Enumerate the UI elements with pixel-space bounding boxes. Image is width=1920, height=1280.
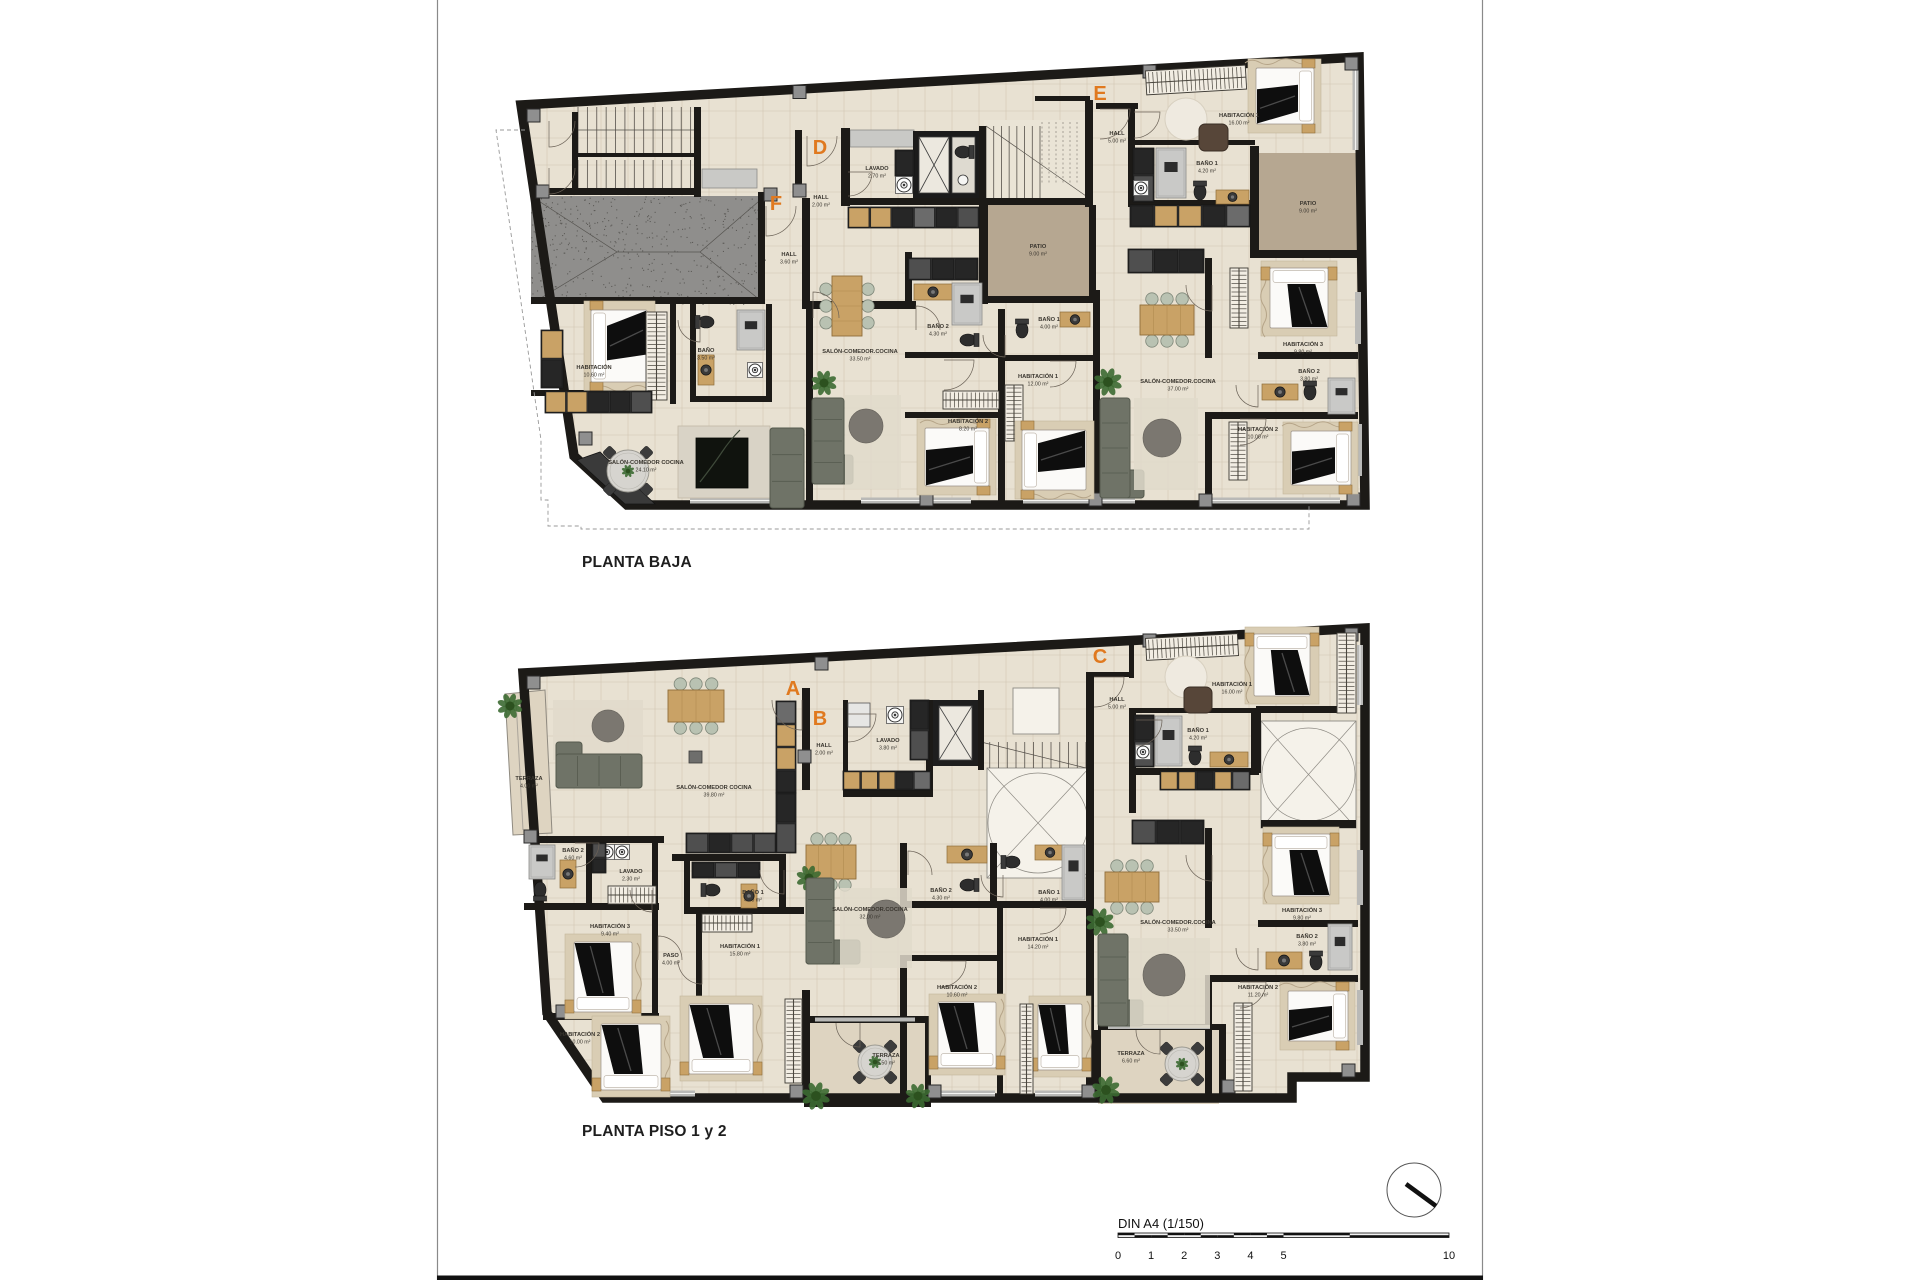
svg-text:4.00 m²: 4.00 m²: [662, 961, 680, 967]
svg-text:9.80 m²: 9.80 m²: [1293, 916, 1311, 922]
svg-text:10.60 m²: 10.60 m²: [947, 993, 968, 999]
svg-text:HABITACIÓN 2: HABITACIÓN 2: [1238, 983, 1278, 991]
svg-text:LAVADO: LAVADO: [619, 869, 643, 875]
svg-text:SALÓN-COMEDOR.COCINA: SALÓN-COMEDOR.COCINA: [1140, 377, 1216, 385]
svg-text:HABITACIÓN 2: HABITACIÓN 2: [1238, 425, 1278, 433]
svg-text:BAÑO 1: BAÑO 1: [1038, 316, 1060, 323]
svg-text:10.00 m²: 10.00 m²: [1248, 435, 1269, 441]
svg-text:HALL: HALL: [781, 252, 797, 258]
svg-text:3: 3: [1214, 1250, 1220, 1262]
svg-text:4.00 m²: 4.00 m²: [1040, 898, 1058, 904]
svg-text:5.00 m²: 5.00 m²: [1108, 139, 1126, 145]
svg-text:12.00 m²: 12.00 m²: [1028, 382, 1049, 388]
svg-text:SALÓN-COMEDOR.COCINA: SALÓN-COMEDOR.COCINA: [832, 905, 908, 913]
svg-text:BAÑO 1: BAÑO 1: [1038, 889, 1060, 896]
svg-text:14.20 m²: 14.20 m²: [1028, 945, 1049, 951]
svg-text:5: 5: [1280, 1250, 1286, 1262]
svg-text:9.40 m²: 9.40 m²: [601, 932, 619, 938]
svg-text:F: F: [770, 193, 782, 215]
svg-text:HALL: HALL: [813, 195, 829, 201]
svg-text:4: 4: [1247, 1250, 1253, 1262]
svg-text:6.60 m²: 6.60 m²: [1122, 1059, 1140, 1065]
svg-text:39.80 m²: 39.80 m²: [704, 793, 725, 799]
svg-text:9.80 m²: 9.80 m²: [1294, 350, 1312, 356]
svg-text:TERRAZA: TERRAZA: [515, 776, 542, 782]
svg-text:TERRAZA: TERRAZA: [872, 1053, 899, 1059]
svg-text:10.00 m²: 10.00 m²: [570, 1040, 591, 1046]
svg-text:3.80 m²: 3.80 m²: [1298, 942, 1316, 948]
svg-text:2: 2: [1181, 1250, 1187, 1262]
svg-text:HABITACIÓN 3: HABITACIÓN 3: [590, 922, 630, 930]
svg-text:2.00 m²: 2.00 m²: [815, 751, 833, 757]
svg-text:SALÓN-COMEDOR.COCINA: SALÓN-COMEDOR.COCINA: [1140, 918, 1216, 926]
svg-text:4.30 m²: 4.30 m²: [929, 332, 947, 338]
svg-text:33.50 m²: 33.50 m²: [1168, 928, 1189, 934]
svg-text:BAÑO 1: BAÑO 1: [1196, 160, 1218, 167]
svg-text:PATIO: PATIO: [1300, 201, 1317, 207]
svg-text:3.60 m²: 3.60 m²: [780, 260, 798, 266]
svg-text:BAÑO 2: BAÑO 2: [927, 323, 949, 330]
svg-text:A: A: [786, 678, 800, 700]
svg-text:2.30 m²: 2.30 m²: [622, 877, 640, 883]
svg-text:B: B: [813, 708, 827, 730]
svg-text:PLANTA PISO 1 y 2: PLANTA PISO 1 y 2: [582, 1123, 727, 1140]
svg-text:15.80 m²: 15.80 m²: [730, 952, 751, 958]
svg-text:37.00 m²: 37.00 m²: [1168, 387, 1189, 393]
svg-text:HALL: HALL: [816, 743, 832, 749]
svg-text:HABITACIÓN 2: HABITACIÓN 2: [937, 983, 977, 991]
svg-text:E: E: [1093, 83, 1106, 105]
svg-text:HABITACIÓN: HABITACIÓN: [576, 363, 611, 371]
svg-text:HABITACIÓN 2: HABITACIÓN 2: [948, 417, 988, 425]
svg-text:PATIO: PATIO: [1030, 244, 1047, 250]
svg-text:16.00 m²: 16.00 m²: [1229, 121, 1250, 127]
svg-text:33.50 m²: 33.50 m²: [850, 357, 871, 363]
svg-text:2.70 m²: 2.70 m²: [868, 174, 886, 180]
svg-text:4.20 m²: 4.20 m²: [1198, 169, 1216, 175]
svg-text:4.30 m²: 4.30 m²: [932, 896, 950, 902]
svg-text:10: 10: [1443, 1250, 1455, 1262]
svg-text:HABITACIÓN 3: HABITACIÓN 3: [1282, 906, 1322, 914]
svg-text:BAÑO 1: BAÑO 1: [1187, 727, 1209, 734]
svg-text:SALÓN-COMEDOR.COCINA: SALÓN-COMEDOR.COCINA: [822, 347, 898, 355]
svg-text:SALÓN-COMEDOR COCINA: SALÓN-COMEDOR COCINA: [676, 783, 752, 791]
svg-text:HALL: HALL: [1109, 697, 1125, 703]
svg-text:D: D: [813, 137, 827, 159]
svg-text:HABITACIÓN 1: HABITACIÓN 1: [1219, 111, 1259, 119]
svg-text:5.00 m²: 5.00 m²: [1108, 705, 1126, 711]
svg-text:BAÑO 1: BAÑO 1: [742, 889, 764, 896]
svg-text:PASO: PASO: [663, 953, 679, 959]
svg-text:10.60 m²: 10.60 m²: [584, 373, 605, 379]
svg-text:2.00 m²: 2.00 m²: [812, 203, 830, 209]
svg-text:1: 1: [1148, 1250, 1154, 1262]
svg-text:4.20 m²: 4.20 m²: [1189, 736, 1207, 742]
svg-text:HABITACIÓN 1: HABITACIÓN 1: [1018, 372, 1058, 380]
svg-text:4.60 m²: 4.60 m²: [564, 856, 582, 862]
svg-text:C: C: [1093, 646, 1107, 668]
svg-text:4.00 m²: 4.00 m²: [520, 784, 538, 790]
svg-text:BAÑO 2: BAÑO 2: [930, 887, 952, 894]
svg-text:BAÑO: BAÑO: [698, 347, 715, 354]
svg-text:4.50 m²: 4.50 m²: [744, 898, 762, 904]
svg-text:9.00 m²: 9.00 m²: [1299, 209, 1317, 215]
svg-text:LAVADO: LAVADO: [865, 166, 889, 172]
svg-text:BAÑO 2: BAÑO 2: [1296, 933, 1318, 940]
svg-text:3.50 m²: 3.50 m²: [697, 356, 715, 362]
svg-text:SALÓN-COMEDOR COCINA: SALÓN-COMEDOR COCINA: [608, 458, 684, 466]
svg-text:LAVADO: LAVADO: [876, 738, 900, 744]
svg-text:16.00 m²: 16.00 m²: [1222, 690, 1243, 696]
svg-text:DIN A4 (1/150): DIN A4 (1/150): [1118, 1216, 1204, 1231]
svg-text:11.20 m²: 11.20 m²: [1248, 993, 1269, 999]
svg-text:9.00 m²: 9.00 m²: [1029, 252, 1047, 258]
svg-text:BAÑO 2: BAÑO 2: [1298, 368, 1320, 375]
svg-text:4.00 m²: 4.00 m²: [1040, 325, 1058, 331]
svg-text:32.00 m²: 32.00 m²: [860, 915, 881, 921]
svg-text:HABITACIÓN 2: HABITACIÓN 2: [560, 1030, 600, 1038]
svg-text:HABITACIÓN 1: HABITACIÓN 1: [1212, 680, 1252, 688]
svg-text:24.10 m²: 24.10 m²: [636, 468, 657, 474]
svg-text:PLANTA BAJA: PLANTA BAJA: [582, 554, 692, 571]
svg-text:HABITACIÓN 1: HABITACIÓN 1: [720, 942, 760, 950]
svg-text:BAÑO 2: BAÑO 2: [562, 847, 584, 854]
svg-text:3.80 m²: 3.80 m²: [1300, 377, 1318, 383]
svg-text:HABITACIÓN 3: HABITACIÓN 3: [1283, 340, 1323, 348]
svg-text:TERRAZA: TERRAZA: [1117, 1051, 1144, 1057]
svg-text:3.80 m²: 3.80 m²: [879, 746, 897, 752]
svg-text:5.50 m²: 5.50 m²: [877, 1061, 895, 1067]
svg-text:8.20 m²: 8.20 m²: [959, 427, 977, 433]
svg-text:HALL: HALL: [1109, 131, 1125, 137]
svg-text:HABITACIÓN 1: HABITACIÓN 1: [1018, 935, 1058, 943]
svg-text:0: 0: [1115, 1250, 1121, 1262]
